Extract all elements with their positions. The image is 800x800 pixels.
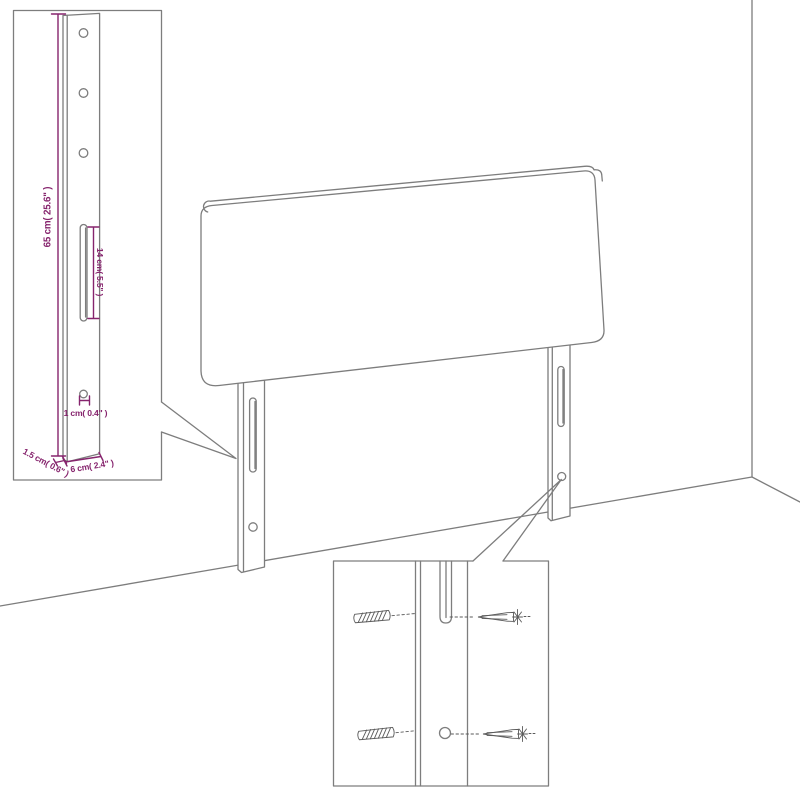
inset-mounting-callout-lines: [473, 480, 561, 562]
diagram-canvas: 65 cm( 25.6" ) 14 cm( 5.5" ) 1 cm( 0.4" …: [0, 0, 800, 800]
dim-label-1cm: 1 cm( 0.4" ): [64, 408, 108, 418]
headboard-panel: [201, 166, 604, 386]
dim-label-65cm: 65 cm( 25.6" ): [43, 187, 54, 248]
inset-leg-callout-lines: [162, 402, 237, 459]
dim-label-14cm: 14 cm( 5.5" ): [95, 248, 105, 297]
inset-mounting-box-border: [334, 561, 549, 786]
headboard-left-leg: [238, 370, 265, 573]
headboard-panel-face: [201, 171, 604, 386]
headboard-dimension-diagram: 65 cm( 25.6" ) 14 cm( 5.5" ) 1 cm( 0.4" …: [0, 0, 800, 800]
inset-mounting-detail: [334, 480, 562, 787]
